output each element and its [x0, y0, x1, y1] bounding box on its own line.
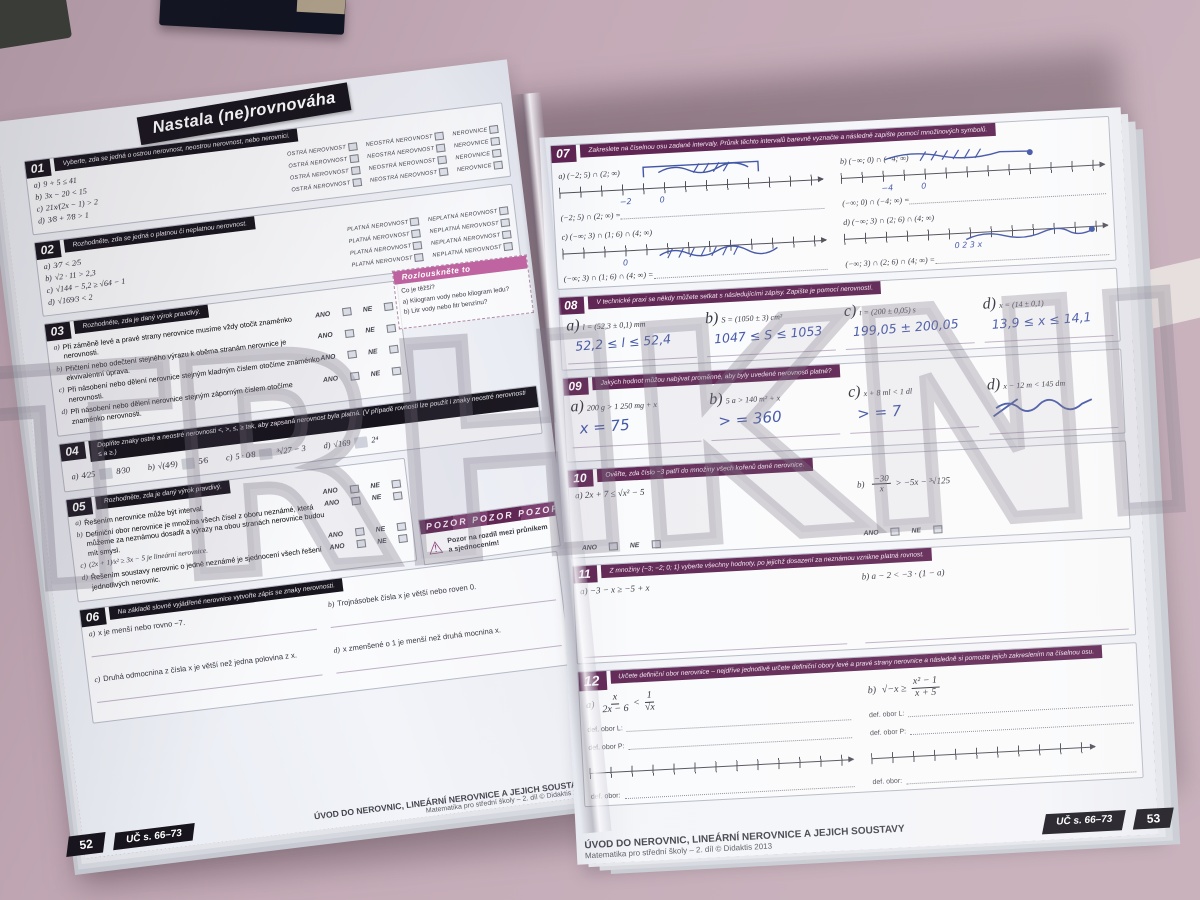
checkbox	[356, 540, 366, 549]
answer-line	[583, 632, 847, 658]
checkbox	[437, 155, 447, 164]
checkbox	[414, 252, 424, 261]
handwritten-label: 0	[659, 195, 665, 204]
item-key: d)	[323, 441, 331, 451]
choice-label: NEROVNICE	[452, 127, 488, 137]
item-key: a)	[53, 343, 60, 352]
checkbox	[351, 497, 361, 506]
answer-box	[181, 457, 195, 470]
number-line	[589, 754, 853, 779]
ne-label: NE	[372, 494, 382, 502]
page-number-tab: 52	[66, 832, 106, 857]
item-math: √−x ≥	[882, 683, 907, 695]
interval-expression: b) (−∞; 0) ∩ (−4; ∞)	[840, 153, 909, 166]
ano-label: ANO	[320, 353, 336, 362]
task-cell: a)l = (52,3 ± 0,1) mm52,2 ≤ l ≤ 52,4	[566, 311, 697, 365]
item-key: a)	[88, 629, 95, 639]
ne-label: NE	[365, 327, 375, 335]
item-left: √169	[333, 439, 351, 450]
item-math: x + 8 ml < 1 dl	[863, 387, 912, 399]
textbook-reference-tab: UČ s. 66–73	[1042, 810, 1126, 834]
checkbox	[500, 218, 510, 227]
section-05-number: 05	[66, 497, 93, 517]
fill-item: c)5 · 0⁄8³√27 − 3	[225, 443, 306, 464]
item-key: d)	[81, 574, 88, 583]
section-01-number: 01	[25, 159, 52, 179]
checkbox	[436, 143, 446, 152]
checkbox	[397, 522, 407, 531]
answer-dots	[906, 762, 1137, 784]
item-key: b)	[867, 685, 876, 696]
fraction-denominator: √x	[645, 702, 655, 713]
checkbox	[490, 136, 500, 145]
tan-box-object	[297, 0, 346, 14]
task-cell: a)200 g > 1 250 mg + xx = 75	[570, 392, 702, 457]
task-cell: b)5 a > 140 m² + x> = 360	[709, 384, 841, 449]
task-cell: d)x = (14 ± 0,1)13,9 ≤ x ≤ 14,1	[982, 289, 1113, 343]
item-key: c)	[80, 561, 87, 570]
comparison-sign: <	[633, 697, 640, 708]
page-number-tab: 53	[1133, 807, 1174, 829]
ano-label: ANO	[863, 529, 878, 537]
answer-box	[259, 447, 273, 460]
item-math: x = (14 ± 0,1)	[999, 299, 1044, 310]
item-math: 3⁄7 < 2⁄5	[53, 258, 82, 270]
checkbox	[439, 167, 449, 176]
section-02-number: 02	[35, 240, 62, 260]
section-06-number: 06	[80, 608, 107, 628]
item-math: 200 g > 1 250 mg + x	[587, 400, 657, 413]
item-key: c)	[36, 204, 43, 214]
fraction: 1√x	[644, 690, 655, 712]
checkbox	[434, 131, 444, 140]
fill-item: d)√1692⁴	[323, 434, 379, 452]
item-key: c)	[46, 285, 53, 295]
warning-triangle-icon: ⚠	[427, 538, 444, 557]
answer-dots	[624, 777, 855, 799]
answer-dots	[908, 695, 1133, 717]
ne-label: NE	[362, 305, 372, 313]
checkbox	[386, 324, 396, 333]
number-line	[871, 741, 1096, 764]
checkbox	[354, 527, 364, 536]
item-math: 5 a > 140 m² + x	[725, 393, 780, 405]
item-left: 5 · 0⁄8	[235, 450, 256, 461]
item-math: l = (52,3 ± 0,1) mm	[582, 319, 645, 331]
fill-item: a)4⁄258⁄30	[71, 465, 131, 483]
ne-label: NE	[375, 525, 385, 533]
ano-label: ANO	[317, 332, 333, 341]
def-obor-label: def. obor:	[872, 778, 902, 787]
ne-label: NE	[368, 348, 378, 356]
section-07-number: 07	[551, 145, 577, 163]
choice-label: NEROVNICE	[454, 139, 490, 149]
choice-label: OSTRÁ NEROVNOST	[291, 180, 351, 193]
choice-label: NEROVNICE	[455, 151, 491, 161]
task-cell: b) √−x ≥ x² − 1x + 5 def. obor L: def. o…	[867, 665, 1136, 786]
item-key: b)	[56, 365, 63, 374]
item-key: b)	[709, 391, 723, 409]
section-12: 12 Určete definiční obor nerovnice – nej…	[577, 642, 1143, 807]
checkbox	[503, 242, 513, 251]
interval-result-label: (−∞; 3) ∩ (2; 6) ∩ (4; ∞) =	[845, 255, 935, 269]
task-cell: c)x + 8 ml < 1 dl> = 7	[848, 377, 980, 442]
choice-label: NEROVNICE	[457, 162, 493, 172]
task-cell: b) a − 2 < −3 · (1 − a)	[861, 558, 1128, 644]
dark-corner-object	[0, 0, 72, 50]
checkbox	[393, 491, 403, 500]
item-math: t = (200 ± 0,05) s	[859, 305, 916, 317]
ano-label: ANO	[329, 543, 345, 552]
task-cell: d)x − 12 m < 145 dm	[986, 370, 1118, 435]
checkbox	[410, 217, 420, 226]
task-cell: a) −3 − x ≥ −5 + x	[580, 572, 847, 658]
item-key: c)	[58, 386, 65, 395]
fraction: x2x − 6	[602, 692, 629, 715]
checkbox	[499, 206, 509, 215]
item-math: 3⁄8 + 7⁄8 > 1	[47, 210, 89, 224]
page-left: Nastala (ne)rovnováha 01 Vyberte, zda se…	[0, 59, 597, 858]
fraction-denominator: x + 5	[915, 687, 937, 699]
item-key: c)	[843, 302, 856, 320]
fraction-denominator: x	[880, 485, 884, 495]
checkbox	[493, 160, 503, 169]
answer-box	[354, 436, 368, 449]
checkbox	[347, 350, 357, 359]
item-key: b)	[147, 463, 155, 473]
checkbox	[389, 345, 399, 354]
item-key: d)	[48, 297, 56, 307]
handwritten-label: 0	[921, 182, 927, 191]
item-key: d)	[333, 645, 340, 655]
item-math: 9 + 5 ≤ 41	[43, 176, 78, 189]
ne-label: NE	[370, 482, 380, 490]
item-key: d)	[982, 295, 996, 313]
checkbox	[890, 527, 899, 535]
def-obor-p-label: def. obor P:	[870, 728, 907, 737]
interval-result-label: (−2; 5) ∩ (2; ∞) =	[560, 210, 621, 222]
page-right: 07 Zakreslete na číselnou osu zadané int…	[539, 107, 1158, 864]
checkbox	[349, 484, 359, 493]
checkbox	[933, 525, 942, 533]
checkbox	[344, 329, 354, 338]
checkbox	[349, 154, 359, 163]
section-04-number: 04	[59, 442, 86, 462]
ano-label: ANO	[328, 530, 344, 539]
checkbox	[391, 479, 401, 488]
checkbox	[502, 230, 512, 239]
interval-result-label: (−∞; 0) ∩ (−4; ∞) =	[842, 195, 910, 208]
item-key: a)	[75, 518, 82, 527]
item-key: b)	[857, 480, 865, 490]
checkbox	[398, 534, 408, 543]
checkbox	[489, 124, 499, 133]
fill-item: b)√(4⁄9)5⁄6	[147, 455, 209, 474]
answer-line	[865, 618, 1129, 644]
task-cell: a) 2x + 7 ≤ √x² − 5 ANONE	[575, 477, 842, 553]
checkbox	[413, 241, 423, 250]
ano-label: ANO	[315, 310, 331, 319]
textbook-reference-tab: UČ s. 66–73	[113, 822, 195, 849]
checkbox	[411, 229, 421, 238]
task-cell: b)S = (1050 ± 3) cm²1047 ≤ S ≤ 1053	[705, 304, 836, 358]
fraction: x² − 1x + 5	[911, 676, 940, 699]
item-right: 8⁄30	[116, 466, 131, 477]
item-key: b)	[45, 273, 53, 283]
ano-label: ANO	[323, 375, 339, 384]
item-key: d)	[986, 376, 1000, 394]
item-left: 4⁄25	[81, 470, 96, 481]
checkbox	[342, 307, 352, 316]
fraction: −30x	[871, 474, 891, 495]
item-right: 5⁄6	[198, 456, 209, 466]
handwritten-label: −4	[881, 183, 893, 193]
item-key: a)	[33, 180, 41, 190]
answer-dots	[628, 728, 852, 750]
item-key: a)	[43, 262, 51, 272]
section-11: 11 Z množiny {−3; −2; 0; 1} vyberte všec…	[572, 536, 1136, 664]
photo-of-open-workbook: Nastala (ne)rovnováha 01 Vyberte, zda se…	[0, 0, 1200, 900]
item-key: c)	[94, 675, 101, 685]
ne-label: NE	[630, 542, 640, 549]
checkbox	[384, 302, 394, 311]
choice-label: PLATNÁ NEROVNOST	[351, 255, 413, 268]
task-cell: b) −30x > −5x − ³√125 ANONE	[856, 462, 1123, 538]
section-07: 07 Zakreslete na číselnou osu zadané int…	[550, 116, 1117, 290]
section-03-number: 03	[45, 322, 72, 342]
item-key: b)	[35, 192, 43, 202]
handwritten-label: 0 2 3 x	[954, 240, 982, 250]
item-key: d)	[38, 216, 46, 226]
interval-result-label: (−∞; 3) ∩ (1; 6) ∩ (4; ∞) =	[564, 269, 654, 283]
handwritten-label: −2	[620, 197, 632, 207]
item-right: 2⁴	[371, 435, 379, 445]
checkbox	[349, 372, 359, 381]
item-math: √169⁄3 < 2	[57, 293, 93, 306]
interval-expression: a) (−2; 5) ∩ (2; ∞)	[558, 169, 620, 181]
interval-expression: d) (−∞; 3) ∩ (2; 6) ∩ (4; ∞)	[843, 213, 934, 227]
checkbox	[651, 540, 660, 548]
checkbox	[492, 148, 502, 157]
ne-label: NE	[911, 527, 921, 534]
item-key: b)	[705, 310, 719, 328]
item-key: a)	[566, 317, 580, 335]
ano-label: ANO	[322, 487, 338, 496]
checkbox	[392, 367, 402, 376]
item-math: S = (1050 ± 3) cm²	[721, 312, 782, 324]
ano-label: ANO	[324, 500, 340, 509]
def-obor-l-label: def. obor L:	[869, 710, 905, 719]
fraction-denominator: 2x − 6	[602, 703, 629, 715]
item-key: c)	[848, 383, 861, 401]
task-cell: a) x2x − 6 < 1√x def. obor L: def. obor …	[586, 680, 855, 801]
item-right: ³√27 − 3	[276, 444, 306, 457]
task-cell: c)t = (200 ± 0,05) s199,05 ± 200,05	[843, 296, 974, 350]
item-math: > −5x − ³√125	[895, 475, 950, 488]
interval-expression: c) (−∞; 3) ∩ (1; 6) ∩ (4; ∞)	[561, 228, 652, 242]
checkbox	[352, 178, 362, 187]
checkbox	[347, 142, 357, 151]
ne-label: NE	[370, 370, 380, 378]
section-08-number: 08	[559, 297, 585, 315]
item-key: a)	[71, 472, 79, 482]
ne-label: NE	[377, 538, 387, 546]
item-key: d)	[61, 408, 68, 417]
answer-dots	[626, 710, 851, 732]
item-math: x − 12 m < 145 dm	[1003, 379, 1065, 391]
handwritten-label: 0	[623, 258, 629, 267]
checkbox	[350, 166, 360, 175]
answer-box	[99, 467, 113, 480]
item-left: √(4⁄9)	[157, 460, 178, 471]
item-key: b)	[76, 531, 83, 540]
checkbox	[609, 542, 618, 550]
answer-dots	[910, 713, 1134, 735]
item-key: c)	[225, 453, 233, 463]
item-key: a)	[570, 398, 584, 416]
item-key: b)	[327, 600, 334, 610]
